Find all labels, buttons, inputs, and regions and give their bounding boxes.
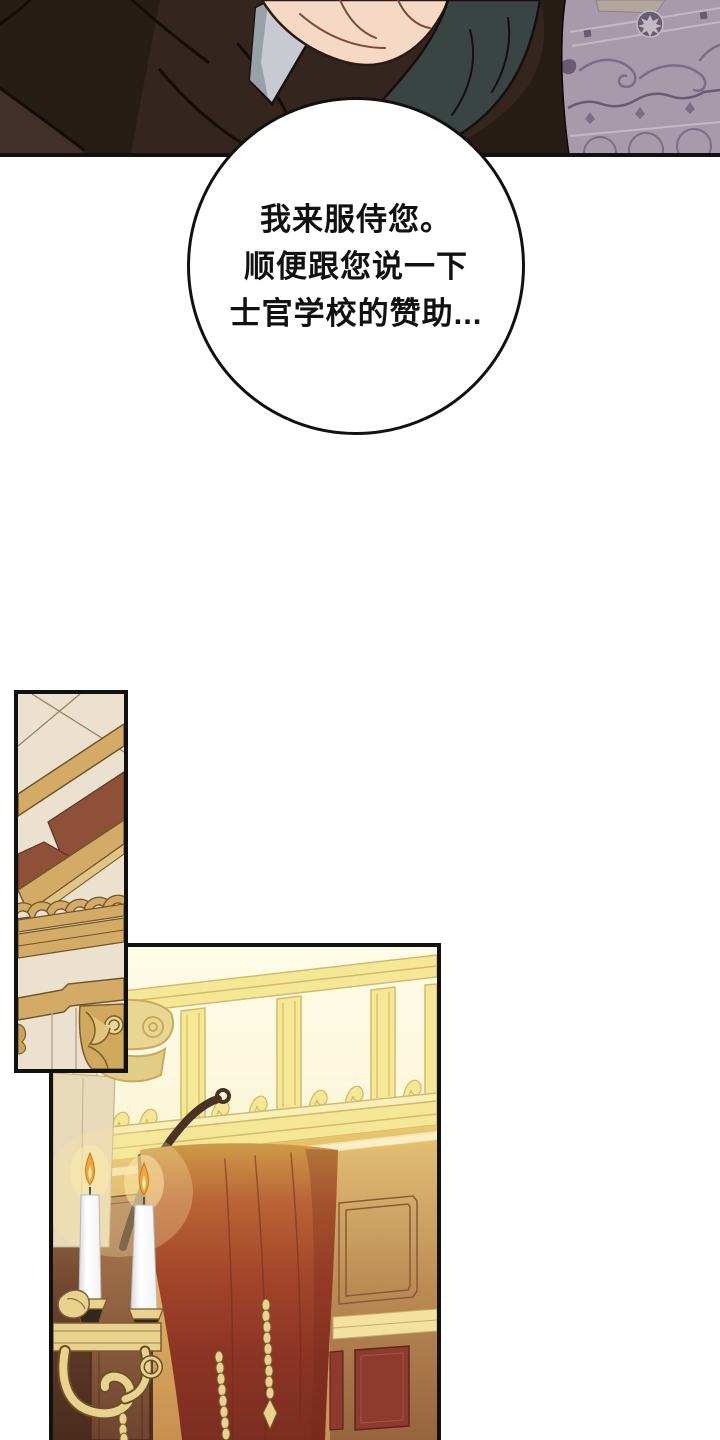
bubble-line-3: 士官学校的赞助... — [230, 290, 483, 337]
red-inset-panels — [330, 1346, 409, 1430]
wood-paneling-right — [330, 1143, 437, 1440]
bubble-line-2: 顺便跟您说一下 — [244, 243, 468, 290]
comic-page: 我来服侍您。 顺便跟您说一下 士官学校的赞助... — [0, 0, 720, 1440]
carpet-star — [638, 15, 662, 37]
speech-bubble: 我来服侍您。 顺便跟您说一下 士官学校的赞助... — [187, 97, 525, 435]
wall-ornament — [18, 1024, 25, 1054]
bubble-line-1: 我来服侍您。 — [260, 196, 452, 243]
acanthus-leaf — [58, 1290, 89, 1318]
ceiling-art — [18, 694, 124, 1069]
carpet-tile — [596, 0, 665, 13]
carpet — [556, 0, 720, 157]
panel-ceiling — [14, 690, 128, 1073]
corbel-capital — [80, 1004, 125, 1069]
